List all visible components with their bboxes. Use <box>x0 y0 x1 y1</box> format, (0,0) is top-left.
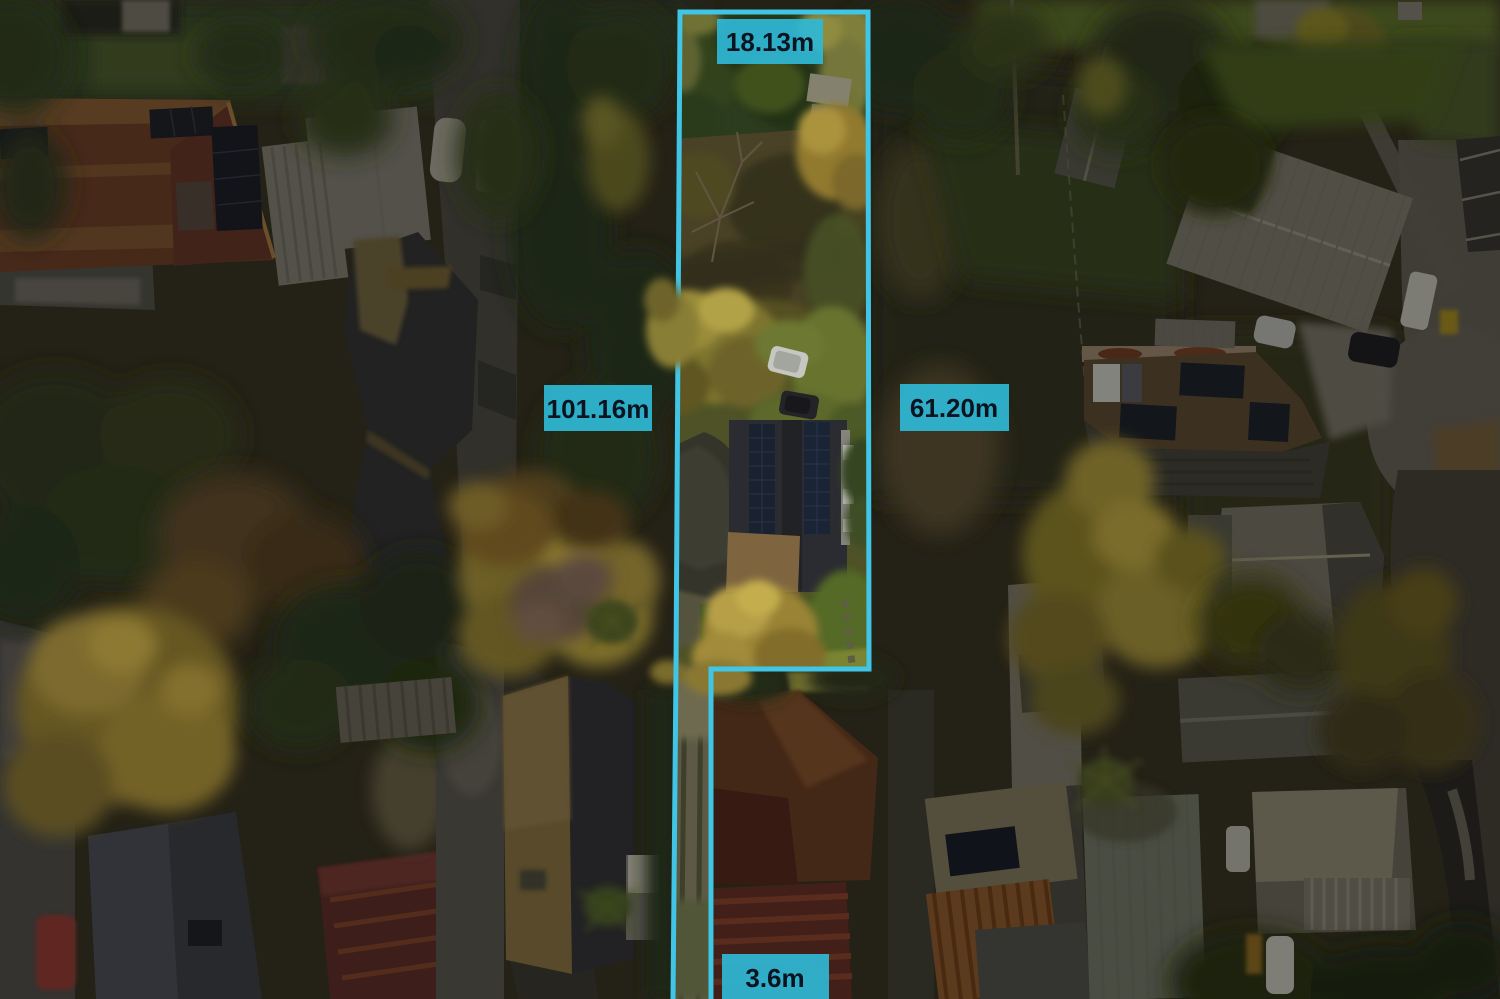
svg-text:18.13m: 18.13m <box>726 27 814 57</box>
svg-text:3.6m: 3.6m <box>745 963 804 993</box>
svg-text:61.20m: 61.20m <box>910 393 998 423</box>
svg-text:101.16m: 101.16m <box>547 394 650 424</box>
